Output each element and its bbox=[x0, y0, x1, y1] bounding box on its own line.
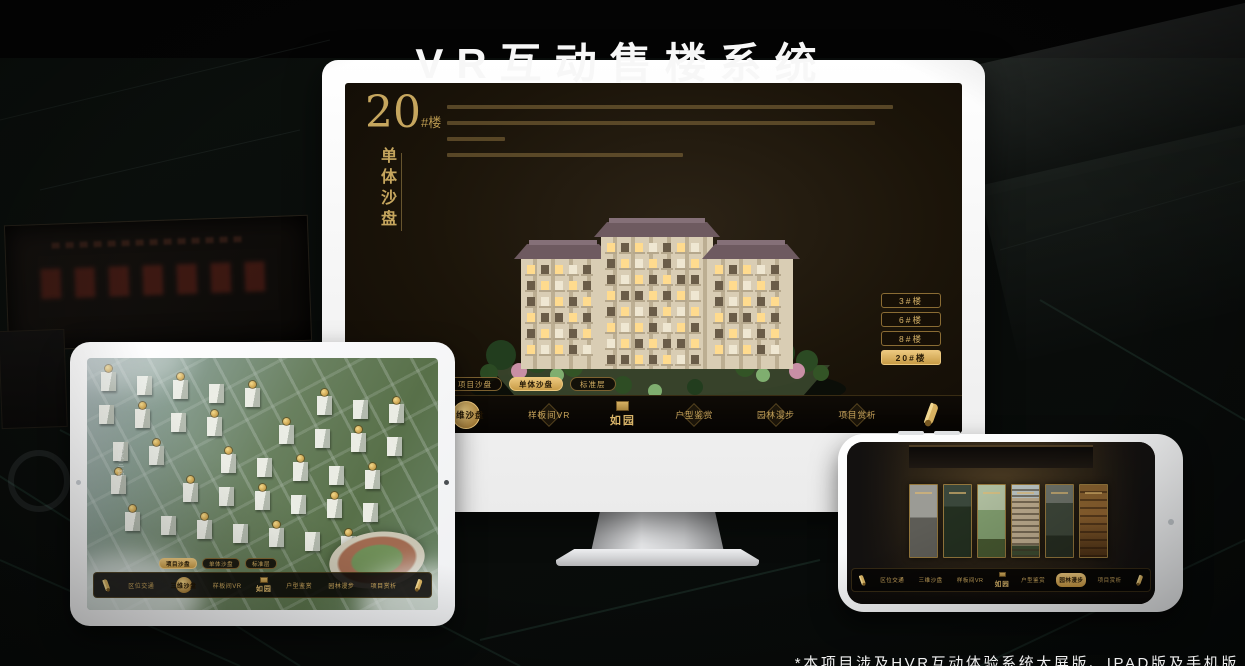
tablet-screen: 园区三路 项目沙盘 单体沙盘 标准层 区位交通 三维沙盘 样板间VR 如园 户型… bbox=[87, 358, 438, 610]
scroll-menu-icon[interactable] bbox=[411, 577, 426, 594]
tab-standard-floor[interactable]: 标准层 bbox=[245, 558, 277, 569]
tab-single-sandtable[interactable]: 单体沙盘 bbox=[202, 558, 240, 569]
nav-item-project-review[interactable]: 项目赏析 bbox=[1095, 573, 1125, 587]
gallery-card-3[interactable] bbox=[977, 484, 1006, 558]
monitor-tab-bar: 项目沙盘 单体沙盘 标准层 bbox=[448, 377, 616, 391]
brand-seal-icon bbox=[999, 572, 1006, 577]
footnote: *本项目涉及HVR互动体验系统大屏版、IPAD版及手机版 bbox=[795, 652, 1239, 666]
tab-standard-floor[interactable]: 标准层 bbox=[570, 377, 616, 391]
nav-item-location-traffic[interactable]: 区位交通 bbox=[877, 573, 907, 587]
nav-item-project-review[interactable]: 项目赏析 bbox=[369, 577, 399, 594]
phone-nav-bar: 区位交通 三维沙盘 样板间VR 如园 户型鉴赏 园林漫步 项目赏析 bbox=[851, 568, 1151, 592]
nav-item-garden-walk[interactable]: 园林漫步 bbox=[1056, 573, 1086, 587]
tablet-home-button[interactable] bbox=[444, 480, 449, 485]
tab-single-sandtable[interactable]: 单体沙盘 bbox=[509, 377, 563, 391]
scroll-menu-icon[interactable] bbox=[916, 401, 946, 429]
nav-item-showroom-vr[interactable]: 样板间VR bbox=[211, 577, 244, 594]
gallery-card-row bbox=[909, 484, 1108, 558]
phone-screen: 区位交通 三维沙盘 样板间VR 如园 户型鉴赏 园林漫步 项目赏析 bbox=[847, 442, 1155, 604]
stage: VR互动售楼系统 20#楼 单体沙盘 3#楼 6#楼 8#楼 20#楼 bbox=[0, 0, 1245, 666]
floor-button-group: 3#楼 6#楼 8#楼 20#楼 bbox=[881, 293, 941, 365]
scroll-menu-icon[interactable] bbox=[99, 577, 114, 594]
floor-button-3[interactable]: 3#楼 bbox=[881, 293, 941, 308]
tab-project-sandtable[interactable]: 项目沙盘 bbox=[448, 377, 502, 391]
scroll-menu-icon[interactable] bbox=[1133, 573, 1146, 588]
brand-logo-text: 如园 bbox=[256, 584, 272, 594]
nav-item-showroom-vr[interactable]: 样板间VR bbox=[954, 573, 987, 587]
floor-button-8[interactable]: 8#楼 bbox=[881, 331, 941, 346]
brand-seal-icon bbox=[260, 577, 268, 583]
nav-item-garden-walk[interactable]: 园林漫步 bbox=[326, 577, 356, 594]
nav-item-floorplan[interactable]: 户型鉴赏 bbox=[671, 403, 717, 427]
tablet-camera-icon bbox=[76, 480, 81, 485]
scroll-menu-icon[interactable] bbox=[856, 573, 869, 588]
building-number-heading: 20#楼 bbox=[365, 91, 441, 135]
floor-button-6[interactable]: 6#楼 bbox=[881, 312, 941, 327]
heading-divider bbox=[401, 153, 402, 231]
nav-item-project-review[interactable]: 项目赏析 bbox=[834, 403, 880, 427]
monitor-stand-neck bbox=[591, 510, 724, 552]
screen-title-vertical: 单体沙盘 bbox=[375, 147, 399, 231]
tablet-device: 园区三路 项目沙盘 单体沙盘 标准层 区位交通 三维沙盘 样板间VR 如园 户型… bbox=[70, 342, 455, 626]
gallery-card-4[interactable] bbox=[1011, 484, 1040, 558]
phone-camera-icon bbox=[1168, 519, 1174, 525]
gallery-card-1[interactable] bbox=[909, 484, 938, 558]
phone-device: 区位交通 三维沙盘 样板间VR 如园 户型鉴赏 园林漫步 项目赏析 bbox=[838, 434, 1183, 612]
floor-button-20[interactable]: 20#楼 bbox=[881, 350, 941, 365]
page-title: VR互动售楼系统 bbox=[0, 30, 1245, 91]
nav-item-floorplan[interactable]: 户型鉴赏 bbox=[1018, 573, 1048, 587]
gallery-card-5[interactable] bbox=[1045, 484, 1074, 558]
brand-logo: 如园 bbox=[995, 572, 1010, 588]
brand-seal-icon bbox=[616, 401, 629, 411]
brand-logo: 如园 bbox=[256, 577, 272, 594]
gateway-lintel bbox=[909, 445, 1093, 468]
monitor-stand-base bbox=[556, 549, 759, 566]
nav-item-garden-walk[interactable]: 园林漫步 bbox=[753, 403, 799, 427]
nav-item-floorplan[interactable]: 户型鉴赏 bbox=[284, 577, 314, 594]
nav-item-location-traffic[interactable]: 区位交通 bbox=[126, 577, 156, 594]
background-watermark-ring bbox=[8, 450, 70, 512]
gallery-card-2[interactable] bbox=[943, 484, 972, 558]
brand-logo-text: 如园 bbox=[610, 412, 636, 428]
gallery-card-6[interactable] bbox=[1079, 484, 1108, 558]
tablet-nav-bar: 区位交通 三维沙盘 样板间VR 如园 户型鉴赏 园林漫步 项目赏析 bbox=[93, 572, 432, 598]
phone-volume-button bbox=[934, 431, 960, 435]
tablet-tab-bar: 项目沙盘 单体沙盘 标准层 bbox=[159, 558, 277, 569]
nav-item-3d-sandtable[interactable]: 三维沙盘 bbox=[916, 573, 946, 587]
brand-logo-text: 如园 bbox=[995, 578, 1010, 588]
nav-item-showroom-vr[interactable]: 样板间VR bbox=[524, 403, 574, 427]
building-number-suffix: #楼 bbox=[421, 115, 441, 130]
brand-logo: 如园 bbox=[610, 401, 636, 428]
road-label: 园区三路 bbox=[114, 444, 124, 478]
background-plaque-small bbox=[0, 329, 68, 429]
nav-item-3d-sandtable[interactable]: 三维沙盘 bbox=[169, 577, 199, 594]
phone-volume-button bbox=[898, 431, 924, 435]
tab-project-sandtable[interactable]: 项目沙盘 bbox=[159, 558, 197, 569]
